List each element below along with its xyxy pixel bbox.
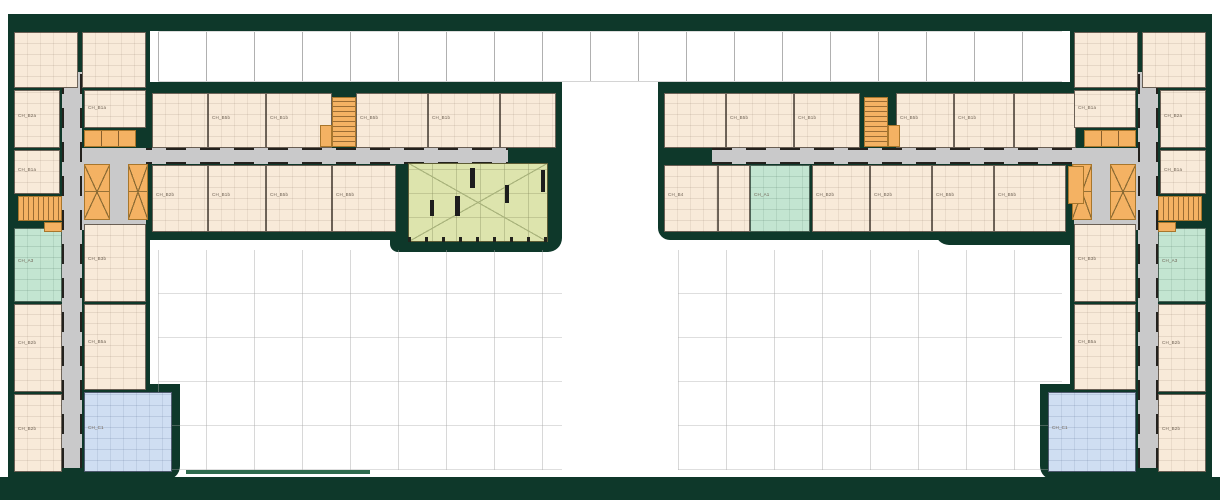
unit-label: CH_B1b (212, 193, 230, 198)
unit-label: CH_B2b (18, 427, 36, 432)
unit-label: CH_B2b (156, 193, 174, 198)
service-core (1068, 166, 1084, 204)
unit-label: CH_B5b (212, 116, 230, 121)
unit-label: CH_B1a (1164, 168, 1182, 173)
apartment-unit: CH_B1a (1160, 150, 1206, 194)
unit-label: CH_B5a (1078, 340, 1096, 345)
courtyard-right (678, 250, 1062, 470)
apartment-unit: CH_B2b (152, 165, 208, 232)
community-hall (408, 163, 548, 242)
corridor-vertical (1138, 72, 1158, 468)
bottom-band (0, 477, 1220, 500)
apartment-unit: CH_B5b (208, 93, 266, 148)
apartment-unit (1014, 93, 1076, 148)
service-core-row (84, 130, 136, 147)
apartment-unit: CH_B2a (1160, 90, 1206, 148)
apartment-unit (1142, 32, 1206, 88)
unit-label: CH_B1b (958, 116, 976, 121)
unit-label: CH_B2b (1162, 427, 1180, 432)
apartment-unit: CH_B5b (266, 165, 332, 232)
apartment-unit: CH_B5b (896, 93, 954, 148)
apartment-unit: CH_B2b (14, 394, 62, 472)
apartment-unit: CH_B5b (994, 165, 1066, 232)
corridor-vertical (62, 72, 82, 468)
unit-label: CH_A3 (18, 259, 34, 264)
unit-label: CH_B2a (18, 114, 36, 119)
elevator-core (1110, 164, 1136, 220)
apartment-unit (664, 93, 726, 148)
structural-column (505, 185, 509, 203)
unit-label: CH_B4 (668, 193, 684, 198)
apartment-unit-blue: CH_C1 (84, 392, 172, 472)
unit-label: CH_B5b (936, 193, 954, 198)
apartment-unit: CH_B5b (932, 165, 994, 232)
apartment-unit: CH_B5b (726, 93, 794, 148)
apartment-unit: CH_B5a (1074, 304, 1136, 390)
apartment-unit-blue: CH_C1 (1048, 392, 1136, 472)
unit-label: CH_B5b (360, 116, 378, 121)
apartment-unit (500, 93, 556, 148)
apartment-unit (14, 32, 78, 88)
top-band (8, 14, 1212, 31)
apartment-unit: CH_B5b (356, 93, 428, 148)
apartment-unit-mint: CH_A1 (750, 165, 810, 232)
apartment-unit: CH_B2b (870, 165, 932, 232)
unit-label: CH_A3 (1162, 259, 1178, 264)
unit-label: CH_C1 (1052, 426, 1068, 431)
apartment-unit: CH_B2b (1158, 394, 1206, 472)
service-core (44, 222, 62, 232)
apartment-unit: CH_B1b (208, 165, 266, 232)
apartment-unit: CH_B2b (14, 304, 62, 392)
floor-plan-canvas: CH_B2aCH_B1aCH_B1aCH_B3bCH_B2bCH_B5aCH_B… (0, 0, 1220, 500)
apartment-unit: CH_B2b (1158, 304, 1206, 392)
unit-label: CH_A1 (754, 193, 770, 198)
stair-core (18, 196, 62, 221)
service-core (320, 125, 332, 147)
unit-label: CH_B1a (88, 106, 106, 111)
service-core (1158, 222, 1176, 232)
stair-core (1158, 196, 1202, 221)
elevator-core (128, 164, 148, 220)
stair-core (864, 97, 888, 147)
apartment-unit: CH_B1b (794, 93, 860, 148)
unit-label: CH_B3b (1078, 257, 1096, 262)
unit-label: CH_B5b (270, 193, 288, 198)
service-core (888, 125, 900, 147)
unit-label: CH_B5b (730, 116, 748, 121)
apartment-unit: CH_B1a (14, 150, 60, 194)
unit-label: CH_B1b (798, 116, 816, 121)
unit-label: CH_C1 (88, 426, 104, 431)
apartment-unit: CH_B5a (84, 304, 146, 390)
unit-label: CH_B2a (1164, 114, 1182, 119)
unit-label: CH_B1b (270, 116, 288, 121)
unit-label: CH_B2b (18, 341, 36, 346)
apartment-unit: CH_B1b (428, 93, 500, 148)
apartment-unit: CH_B3b (1074, 224, 1136, 302)
apartment-unit: CH_B1a (1074, 90, 1136, 128)
apartment-unit (1074, 32, 1138, 88)
unit-label: CH_B1a (18, 168, 36, 173)
unit-label: CH_B2b (1162, 341, 1180, 346)
apartment-unit: CH_B2a (14, 90, 60, 148)
unit-label: CH_B5b (336, 193, 354, 198)
structural-column (430, 200, 434, 216)
structural-column (470, 168, 475, 188)
apartment-unit: CH_B5b (332, 165, 396, 232)
apartment-unit (718, 165, 750, 232)
apartment-unit-mint: CH_A3 (1158, 228, 1206, 302)
unit-label: CH_B1b (432, 116, 450, 121)
apartment-unit: CH_B3b (84, 224, 146, 302)
service-core-row (1084, 130, 1136, 147)
unit-label: CH_B1a (1078, 106, 1096, 111)
apartment-unit: CH_B1b (954, 93, 1014, 148)
apartment-unit: CH_B2b (812, 165, 870, 232)
apartment-unit: CH_B4 (664, 165, 718, 232)
apartment-unit (152, 93, 208, 148)
unit-label: CH_B5b (900, 116, 918, 121)
unit-label: CH_B3b (88, 257, 106, 262)
unit-label: CH_B5b (998, 193, 1016, 198)
site-edge-line (186, 470, 370, 474)
structural-column (541, 170, 545, 192)
unit-label: CH_B2b (874, 193, 892, 198)
elevator-core (84, 164, 110, 220)
structural-column (455, 196, 460, 216)
apartment-unit-mint: CH_A3 (14, 228, 62, 302)
apartment-unit: CH_B1a (84, 90, 146, 128)
stair-core (332, 97, 356, 147)
courtyard-left (158, 250, 562, 470)
unit-label: CH_B2b (816, 193, 834, 198)
unit-label: CH_B5a (88, 340, 106, 345)
apartment-unit (82, 32, 146, 88)
canopy-grid-strip (158, 31, 1062, 82)
